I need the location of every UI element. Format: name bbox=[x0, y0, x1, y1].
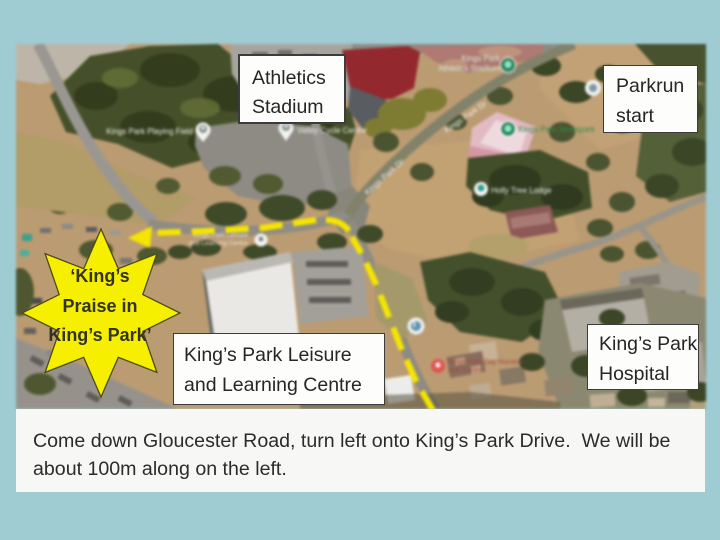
svg-text:‘King’s: ‘King’s bbox=[70, 266, 129, 286]
svg-text:Kings Park Day Nursery: Kings Park Day Nursery bbox=[448, 359, 523, 366]
svg-text:Kings Park Playing Field: Kings Park Playing Field bbox=[106, 127, 193, 136]
svg-text:and Centre: and Centre bbox=[448, 367, 483, 374]
svg-text:Valley Cycle Centre: Valley Cycle Centre bbox=[297, 126, 367, 135]
svg-text:and Learning Centre: and Learning Centre bbox=[189, 240, 249, 247]
svg-text:Kings Park Skatepark: Kings Park Skatepark bbox=[518, 125, 596, 134]
svg-text:Athletics Stadium: Athletics Stadium bbox=[438, 64, 500, 73]
svg-text:Kings Park: Kings Park bbox=[461, 54, 501, 63]
svg-text:Praise in: Praise in bbox=[62, 296, 137, 316]
svg-text:Holly Tree Lodge: Holly Tree Lodge bbox=[491, 186, 552, 195]
svg-text:King’s Park’: King’s Park’ bbox=[48, 325, 151, 345]
